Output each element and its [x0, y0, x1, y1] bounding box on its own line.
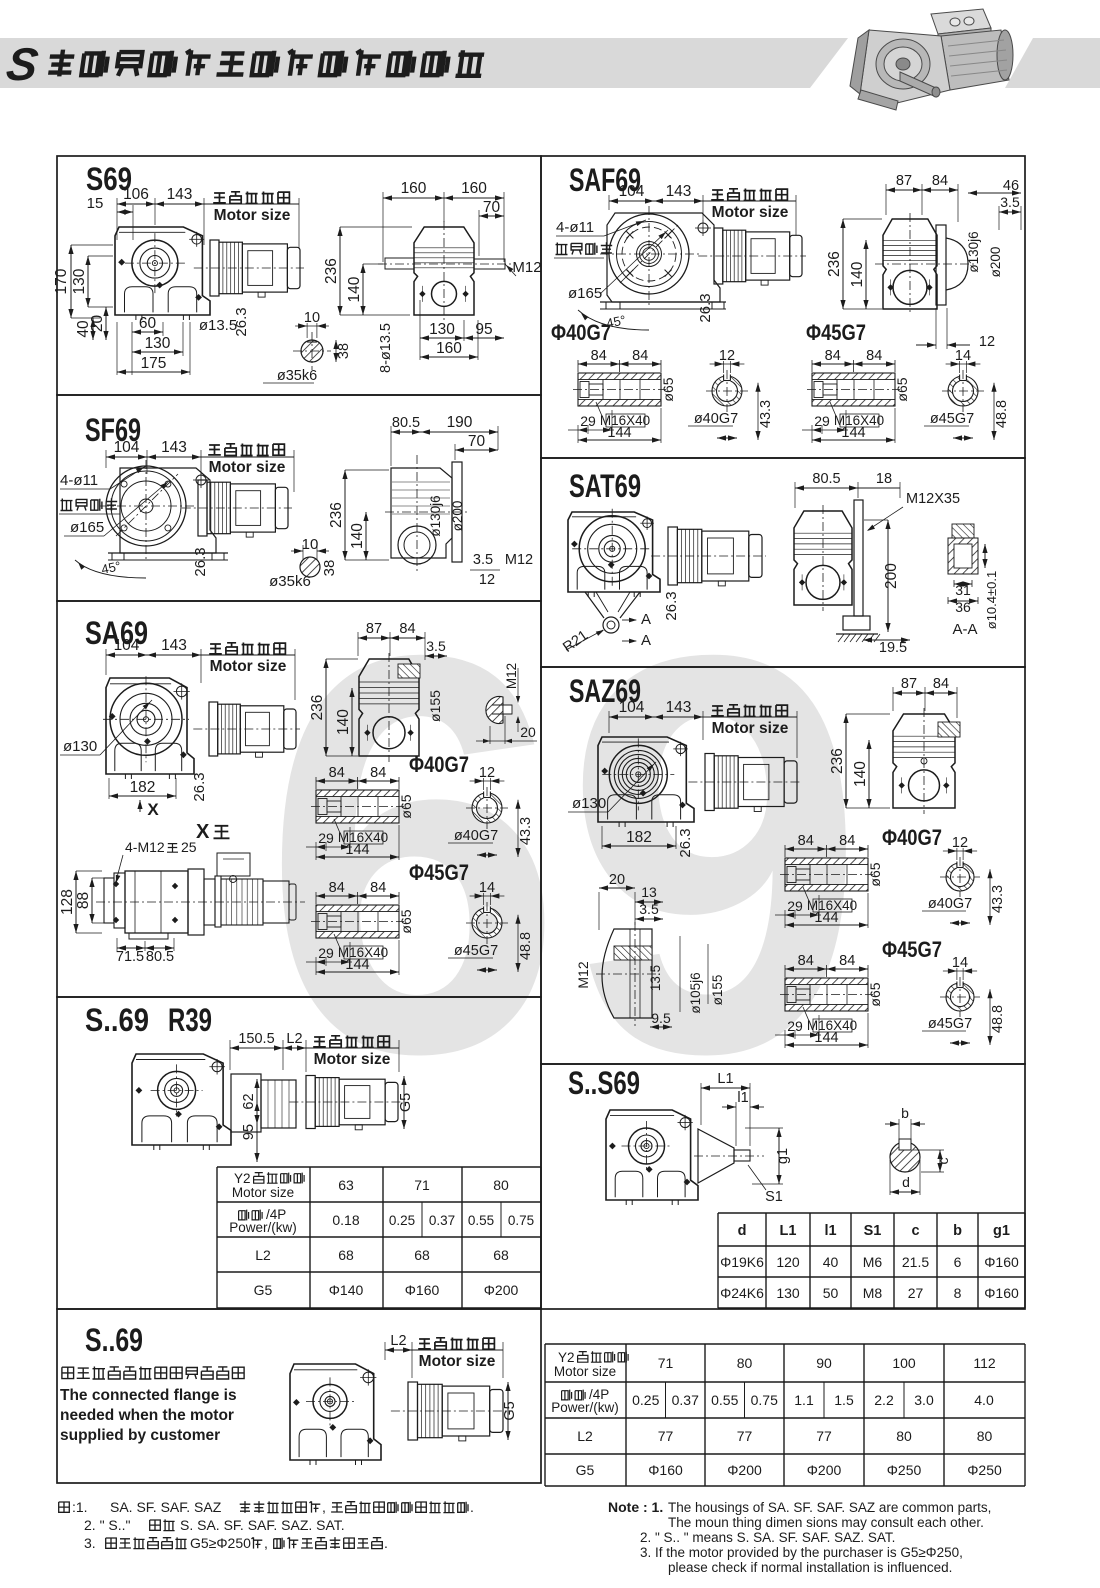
svg-text:The housings of SA. SF. SAF. S: The housings of SA. SF. SAF. SAZ are com…: [668, 1500, 991, 1515]
svg-text:l1: l1: [737, 1090, 748, 1106]
svg-text:2. " S.. " means S. SA. SF.: 2. " S.. " means S. SA. SF. SAF. SAZ. SA…: [640, 1530, 895, 1545]
svg-text:X: X: [196, 821, 210, 843]
svg-text:4-ø11: 4-ø11: [60, 472, 98, 489]
svg-text:S..69: S..69: [85, 1322, 143, 1358]
svg-text:Φ160: Φ160: [984, 1254, 1019, 1270]
svg-text:12: 12: [979, 334, 995, 350]
svg-text:14: 14: [952, 955, 968, 971]
svg-text:A-A: A-A: [952, 621, 977, 638]
svg-text:160: 160: [401, 180, 427, 197]
svg-text:b: b: [953, 1223, 962, 1239]
svg-text:M6: M6: [863, 1254, 883, 1270]
svg-text:Φ40G7: Φ40G7: [551, 320, 611, 345]
svg-text:3.5: 3.5: [639, 901, 659, 917]
svg-text:26.3: 26.3: [677, 828, 694, 857]
svg-text:140: 140: [852, 761, 869, 787]
svg-text:needed when the motor: needed when the motor: [60, 1407, 234, 1424]
svg-text:9.5: 9.5: [651, 1010, 671, 1026]
svg-text:104: 104: [619, 699, 645, 716]
svg-text:0.75: 0.75: [508, 1213, 534, 1228]
svg-text:144: 144: [841, 425, 865, 441]
svg-text:43.3: 43.3: [990, 885, 1006, 913]
svg-text:Φ200: Φ200: [807, 1462, 842, 1478]
svg-text:84: 84: [932, 173, 948, 189]
svg-text:ø40G7: ø40G7: [928, 896, 972, 912]
svg-text:70: 70: [483, 199, 501, 216]
svg-text:170: 170: [53, 268, 70, 294]
svg-text:L2: L2: [390, 1333, 406, 1349]
svg-text:71: 71: [414, 1177, 430, 1193]
svg-text:120: 120: [776, 1254, 800, 1270]
svg-text:40: 40: [823, 1254, 839, 1270]
svg-text:Φ45G7: Φ45G7: [882, 937, 942, 962]
svg-text:10: 10: [302, 536, 319, 553]
svg-text:27: 27: [908, 1285, 924, 1301]
svg-text:77: 77: [816, 1428, 832, 1444]
svg-text:0.18: 0.18: [332, 1212, 359, 1228]
svg-text:43.3: 43.3: [518, 817, 534, 845]
svg-text:140: 140: [849, 261, 866, 287]
svg-text:Φ160: Φ160: [984, 1285, 1019, 1301]
svg-text:8: 8: [954, 1285, 962, 1301]
svg-text:The moun thing dimen sions may: The moun thing dimen sions may consult e…: [668, 1515, 984, 1530]
svg-text:ø45G7: ø45G7: [928, 1016, 972, 1032]
svg-text:48.8: 48.8: [990, 1005, 1006, 1033]
svg-text:80.5: 80.5: [392, 415, 420, 431]
svg-text:100: 100: [892, 1355, 916, 1371]
svg-text:ø10.4±0.1: ø10.4±0.1: [984, 571, 999, 629]
svg-text:130: 130: [145, 335, 171, 352]
svg-text:80.5: 80.5: [812, 471, 840, 487]
svg-text:20: 20: [89, 315, 106, 333]
svg-text:G5: G5: [398, 1093, 414, 1112]
svg-text:84: 84: [933, 676, 949, 692]
svg-text:Φ200: Φ200: [484, 1282, 519, 1298]
svg-text:ø65: ø65: [894, 377, 910, 401]
svg-text:g1: g1: [993, 1223, 1010, 1239]
svg-text:ø13.5: ø13.5: [199, 317, 237, 334]
svg-text:160: 160: [436, 340, 462, 357]
svg-text:L2: L2: [286, 1031, 302, 1047]
svg-text:0.25: 0.25: [389, 1213, 415, 1228]
svg-text:Φ40G7: Φ40G7: [409, 752, 469, 777]
svg-text:1.1: 1.1: [794, 1392, 814, 1408]
svg-text:26.3: 26.3: [191, 772, 208, 801]
svg-text:80: 80: [493, 1177, 509, 1193]
svg-text:ø65: ø65: [398, 909, 414, 933]
svg-text:84: 84: [839, 833, 855, 849]
svg-text:130: 130: [429, 321, 455, 338]
svg-text:Φ200: Φ200: [727, 1462, 762, 1478]
svg-text:236: 236: [826, 251, 843, 277]
svg-text:200: 200: [883, 563, 900, 589]
svg-text:71: 71: [658, 1355, 674, 1371]
svg-text:M8: M8: [863, 1285, 883, 1301]
svg-text:26.3: 26.3: [233, 307, 250, 336]
svg-text:12: 12: [479, 572, 495, 588]
svg-text:ø155: ø155: [427, 690, 443, 722]
svg-text:26.3: 26.3: [663, 591, 680, 620]
svg-text:3.0: 3.0: [914, 1392, 934, 1408]
svg-text:Φ45G7: Φ45G7: [409, 860, 469, 885]
svg-text:Motor size: Motor size: [209, 459, 286, 476]
svg-text:0.37: 0.37: [429, 1213, 455, 1228]
svg-text:144: 144: [814, 910, 838, 926]
svg-text:S1: S1: [765, 1189, 783, 1205]
svg-text:S. SA. SF. SAF. SAZ. SAT.: S. SA. SF. SAF. SAZ. SAT.: [180, 1517, 345, 1533]
svg-text:60: 60: [139, 315, 157, 332]
svg-text:0.55: 0.55: [468, 1213, 494, 1228]
svg-text:l1: l1: [824, 1223, 836, 1239]
svg-text:Φ19K6: Φ19K6: [720, 1254, 764, 1270]
svg-text:3. If the motor provided by t: 3. If the motor provided by the purchase…: [640, 1545, 963, 1560]
svg-text:13: 13: [641, 884, 657, 900]
svg-text:G5≥Φ250: G5≥Φ250: [190, 1535, 251, 1551]
svg-text:70: 70: [468, 433, 486, 450]
svg-text:M12: M12: [504, 663, 519, 689]
svg-text:Motor size: Motor size: [419, 1353, 496, 1370]
svg-text:S..69: S..69: [85, 1002, 149, 1038]
svg-text:130: 130: [71, 268, 88, 294]
svg-text:ø155: ø155: [710, 975, 725, 1006]
svg-text:Φ250: Φ250: [967, 1462, 1002, 1478]
svg-text:63: 63: [338, 1177, 354, 1193]
svg-text:2. " S..": 2. " S..": [84, 1517, 131, 1533]
svg-text:ø200: ø200: [450, 501, 465, 532]
svg-text:SA. SF. SAF. SAZ: SA. SF. SAF. SAZ: [110, 1499, 222, 1515]
svg-text:G5: G5: [254, 1282, 273, 1298]
svg-text:S..S69: S..S69: [568, 1065, 640, 1101]
svg-text:Φ45G7: Φ45G7: [806, 320, 866, 345]
svg-text:ø65: ø65: [867, 862, 883, 886]
svg-text:12: 12: [719, 348, 735, 364]
svg-text:84: 84: [370, 765, 386, 781]
svg-text:Motor size: Motor size: [712, 204, 789, 221]
svg-text:ø65: ø65: [867, 982, 883, 1006]
svg-text:77: 77: [658, 1428, 674, 1444]
svg-text:ø200: ø200: [988, 247, 1003, 278]
svg-text:95: 95: [241, 1124, 257, 1140]
svg-text:87: 87: [901, 676, 917, 692]
svg-text:88: 88: [75, 892, 92, 909]
svg-text:84: 84: [798, 833, 814, 849]
svg-text:182: 182: [626, 829, 652, 846]
svg-text:87: 87: [366, 621, 382, 637]
svg-text:M12X35: M12X35: [906, 491, 960, 507]
svg-text:130: 130: [776, 1285, 800, 1301]
svg-text:M12: M12: [512, 259, 541, 276]
svg-text::1.: :1.: [72, 1499, 88, 1515]
svg-text:ø65: ø65: [660, 377, 676, 401]
svg-text:13.5: 13.5: [648, 965, 663, 991]
svg-text:15: 15: [87, 195, 104, 212]
svg-text:2.2: 2.2: [874, 1392, 894, 1408]
svg-text:84: 84: [329, 765, 345, 781]
svg-text:84: 84: [798, 953, 814, 969]
svg-text:Motor size: Motor size: [314, 1051, 391, 1068]
svg-text:10: 10: [304, 310, 320, 326]
svg-text:36: 36: [955, 599, 971, 615]
svg-text:80: 80: [977, 1428, 993, 1444]
svg-text:supplied by customer: supplied by customer: [60, 1427, 220, 1444]
svg-text:ø130: ø130: [572, 795, 606, 812]
svg-text:please check if normal install: please check if normal installation is i…: [668, 1560, 952, 1575]
svg-text:Note : 1.: Note : 1.: [608, 1499, 663, 1515]
svg-text:77: 77: [737, 1428, 753, 1444]
svg-text:Φ24K6: Φ24K6: [720, 1285, 764, 1301]
svg-text:25: 25: [181, 839, 197, 855]
svg-text:68: 68: [414, 1247, 430, 1263]
svg-text:38: 38: [321, 560, 338, 577]
svg-text:SAT69: SAT69: [569, 468, 641, 504]
svg-text:112: 112: [973, 1355, 996, 1371]
svg-text:Motor size: Motor size: [210, 658, 287, 675]
svg-text:,: ,: [322, 1499, 326, 1515]
svg-text:106: 106: [123, 186, 149, 203]
svg-text:12: 12: [479, 765, 495, 781]
svg-text:ø165: ø165: [568, 285, 602, 302]
svg-text:Y2: Y2: [234, 1171, 251, 1186]
svg-text:Φ250: Φ250: [887, 1462, 922, 1478]
svg-text:18: 18: [876, 471, 892, 487]
svg-text:0.25: 0.25: [632, 1392, 659, 1408]
svg-text:L1: L1: [717, 1071, 733, 1087]
svg-text:175: 175: [141, 355, 167, 372]
svg-text:g1: g1: [775, 1148, 791, 1164]
svg-text:140: 140: [335, 709, 352, 735]
svg-text:Power/(kw): Power/(kw): [551, 1400, 619, 1415]
svg-text:84: 84: [866, 348, 882, 364]
svg-text:3.5: 3.5: [473, 552, 493, 568]
svg-text:ø40G7: ø40G7: [694, 411, 738, 427]
svg-text:0.75: 0.75: [751, 1392, 778, 1408]
svg-text:236: 236: [328, 502, 345, 528]
svg-text:X: X: [147, 800, 159, 819]
svg-text:M12: M12: [505, 552, 533, 568]
svg-text:236: 236: [309, 695, 326, 721]
svg-text:3.: 3.: [84, 1535, 96, 1551]
svg-text:The connected flange is: The connected flange is: [60, 1387, 237, 1404]
svg-text:Motor size: Motor size: [214, 207, 291, 224]
svg-text:L1: L1: [780, 1223, 797, 1239]
svg-text:84: 84: [399, 621, 415, 637]
svg-text:144: 144: [345, 957, 369, 973]
svg-text:ø45G7: ø45G7: [454, 943, 498, 959]
svg-text:80.5: 80.5: [146, 949, 174, 965]
svg-text:84: 84: [632, 348, 648, 364]
svg-text:Motor size: Motor size: [232, 1185, 294, 1200]
svg-text:d: d: [902, 1174, 910, 1190]
svg-text:G5: G5: [502, 1401, 518, 1420]
svg-text:ø130j6: ø130j6: [966, 231, 981, 272]
svg-text:ø65: ø65: [398, 794, 414, 818]
svg-text:84: 84: [329, 880, 345, 896]
svg-text:b: b: [901, 1105, 909, 1121]
svg-text:14: 14: [955, 348, 971, 364]
svg-text:84: 84: [825, 348, 841, 364]
svg-text:80: 80: [896, 1428, 912, 1444]
svg-text:84: 84: [839, 953, 855, 969]
svg-text:6: 6: [954, 1254, 962, 1270]
svg-text:87: 87: [896, 173, 912, 189]
svg-text:140: 140: [346, 276, 363, 302]
svg-text:L2: L2: [577, 1428, 593, 1444]
svg-text:84: 84: [591, 348, 607, 364]
svg-text:144: 144: [607, 425, 631, 441]
svg-text:Φ140: Φ140: [329, 1282, 364, 1298]
svg-text:3.5: 3.5: [426, 638, 446, 654]
svg-text:84: 84: [370, 880, 386, 896]
svg-text:128: 128: [59, 889, 76, 915]
svg-text:Motor size: Motor size: [712, 720, 789, 737]
svg-text:26.3: 26.3: [192, 547, 209, 576]
svg-text:G5: G5: [576, 1462, 595, 1478]
svg-text:68: 68: [338, 1247, 354, 1263]
svg-text:140: 140: [349, 523, 366, 549]
svg-text:143: 143: [161, 439, 187, 456]
svg-text:150.5: 150.5: [238, 1031, 274, 1047]
svg-text:104: 104: [114, 439, 140, 456]
svg-text:19.5: 19.5: [879, 640, 907, 656]
svg-text:143: 143: [167, 186, 193, 203]
svg-text:144: 144: [345, 842, 369, 858]
svg-text:104: 104: [619, 183, 645, 200]
svg-text:71.5: 71.5: [116, 949, 144, 965]
svg-text:38: 38: [336, 343, 352, 359]
svg-text:c: c: [911, 1223, 919, 1239]
svg-text:26.3: 26.3: [697, 293, 714, 322]
svg-text:4-M12: 4-M12: [125, 839, 165, 855]
svg-text:236: 236: [323, 258, 340, 284]
svg-text:21.5: 21.5: [902, 1254, 929, 1270]
svg-text:c: c: [935, 1158, 951, 1165]
svg-text:62: 62: [241, 1093, 257, 1109]
svg-text:d: d: [738, 1223, 747, 1239]
svg-text:Φ40G7: Φ40G7: [882, 825, 942, 850]
svg-text:Y2: Y2: [558, 1350, 575, 1365]
svg-text:80: 80: [737, 1355, 753, 1371]
svg-text:4.0: 4.0: [974, 1392, 994, 1408]
svg-text:48.8: 48.8: [518, 932, 534, 960]
svg-text:68: 68: [493, 1247, 509, 1263]
svg-text:.: .: [470, 1499, 474, 1515]
svg-text:ø105j6: ø105j6: [688, 972, 703, 1013]
svg-text:3.5: 3.5: [1000, 194, 1020, 210]
svg-text:1.5: 1.5: [834, 1392, 854, 1408]
svg-text:ø165: ø165: [70, 519, 104, 536]
svg-text:M12: M12: [575, 961, 591, 988]
svg-text:0.37: 0.37: [672, 1392, 699, 1408]
svg-text:ø45G7: ø45G7: [930, 411, 974, 427]
svg-text:,: ,: [264, 1535, 268, 1551]
svg-text:S1: S1: [864, 1223, 882, 1239]
svg-text:R39: R39: [168, 1002, 212, 1038]
svg-text:143: 143: [666, 183, 692, 200]
svg-text:144: 144: [814, 1030, 838, 1046]
svg-text:50: 50: [823, 1285, 839, 1301]
svg-text:20: 20: [609, 872, 625, 888]
svg-text:Power/(kw): Power/(kw): [229, 1220, 297, 1235]
svg-text:20: 20: [520, 724, 536, 740]
svg-text:48.8: 48.8: [994, 400, 1010, 428]
svg-text:4-ø11: 4-ø11: [556, 219, 594, 236]
svg-text:ø35k6: ø35k6: [277, 368, 317, 384]
svg-text:Motor size: Motor size: [554, 1364, 616, 1379]
svg-text:L2: L2: [255, 1247, 271, 1263]
svg-text:190: 190: [447, 414, 473, 431]
svg-text:31: 31: [955, 582, 971, 598]
svg-text:A: A: [641, 632, 651, 649]
svg-text:143: 143: [666, 699, 692, 716]
svg-text:A: A: [641, 611, 651, 628]
svg-text:ø130: ø130: [63, 738, 97, 755]
svg-text:ø130j6: ø130j6: [428, 495, 443, 536]
svg-text:Φ160: Φ160: [648, 1462, 683, 1478]
svg-text:0.55: 0.55: [711, 1392, 738, 1408]
svg-text:Φ160: Φ160: [405, 1282, 440, 1298]
svg-text:90: 90: [816, 1355, 832, 1371]
svg-text:12: 12: [952, 835, 968, 851]
svg-text:8-ø13.5: 8-ø13.5: [378, 323, 394, 373]
svg-text:182: 182: [130, 779, 156, 796]
svg-text:95: 95: [475, 321, 492, 338]
svg-text:143: 143: [161, 637, 187, 654]
svg-text:.: .: [384, 1535, 388, 1551]
svg-text:ø40G7: ø40G7: [454, 828, 498, 844]
svg-text:14: 14: [479, 880, 495, 896]
svg-text:104: 104: [114, 637, 140, 654]
svg-text:43.3: 43.3: [758, 400, 774, 428]
svg-text:160: 160: [461, 180, 487, 197]
svg-text:46: 46: [1003, 178, 1019, 194]
svg-text:236: 236: [829, 748, 846, 774]
